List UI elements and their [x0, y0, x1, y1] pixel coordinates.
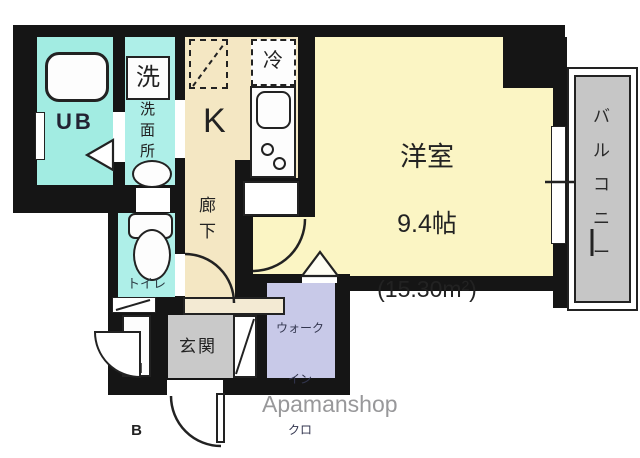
label-balcony: バルコニー — [592, 100, 611, 270]
window-east-sliding — [551, 126, 566, 244]
door-gap-washroom-south — [136, 188, 170, 212]
door-gap-ub-washroom — [113, 112, 125, 162]
door-gap-toilet — [175, 254, 185, 296]
label-toilet: トイレ — [127, 277, 166, 291]
washbasin-icon — [132, 160, 172, 188]
door-gap-washroom-kitchen — [175, 100, 185, 158]
label-walk-in-closet: ウォーク イン クロ ゼット — [266, 286, 334, 458]
bathtub-icon — [45, 52, 109, 102]
label-unit-bath: UB — [56, 110, 94, 134]
entrance-door-leaf — [216, 393, 225, 443]
wall-ub-washroom — [113, 37, 125, 185]
toilet-door-panel — [112, 297, 156, 313]
entrance-door-gap — [167, 380, 223, 395]
label-western-room: 洋室 9.4帖 (15.30m²) — [317, 106, 537, 340]
storage-dashed-box — [189, 39, 228, 89]
shoe-cabinet — [233, 315, 257, 378]
toilet-bowl-icon — [133, 229, 171, 281]
doorway-western-room — [243, 181, 299, 216]
label-fridge: 冷 — [263, 50, 283, 72]
label-western-area: (15.30m²) — [317, 275, 537, 305]
label-washroom: 洗面所 — [139, 99, 156, 162]
stove-burner-icon — [261, 143, 274, 156]
label-meter-box: M B — [124, 320, 149, 458]
door-arc-entrance — [171, 396, 221, 446]
label-western-name: 洋室 — [317, 141, 537, 173]
label-western-tatami: 9.4帖 — [317, 209, 537, 240]
room-western-ext — [251, 215, 313, 277]
label-mb-b: B — [124, 417, 149, 444]
label-corridor: 廊下 — [198, 193, 217, 246]
watermark: Apamanshop — [262, 392, 398, 417]
label-entrance: 玄関 — [179, 338, 217, 357]
label-washer: 洗 — [136, 65, 160, 91]
stove-burner-icon — [273, 157, 286, 170]
label-mb-m: M — [124, 355, 149, 382]
window-ub — [35, 112, 45, 160]
floor-plan: UB 洗 洗面所 K 冷 廊下 トイレ 洋室 9.4帖 (15.30m²) 玄関… — [0, 0, 640, 458]
label-kitchen: K — [203, 103, 226, 140]
kitchen-sink-icon — [256, 91, 291, 129]
wall-top — [13, 25, 565, 37]
